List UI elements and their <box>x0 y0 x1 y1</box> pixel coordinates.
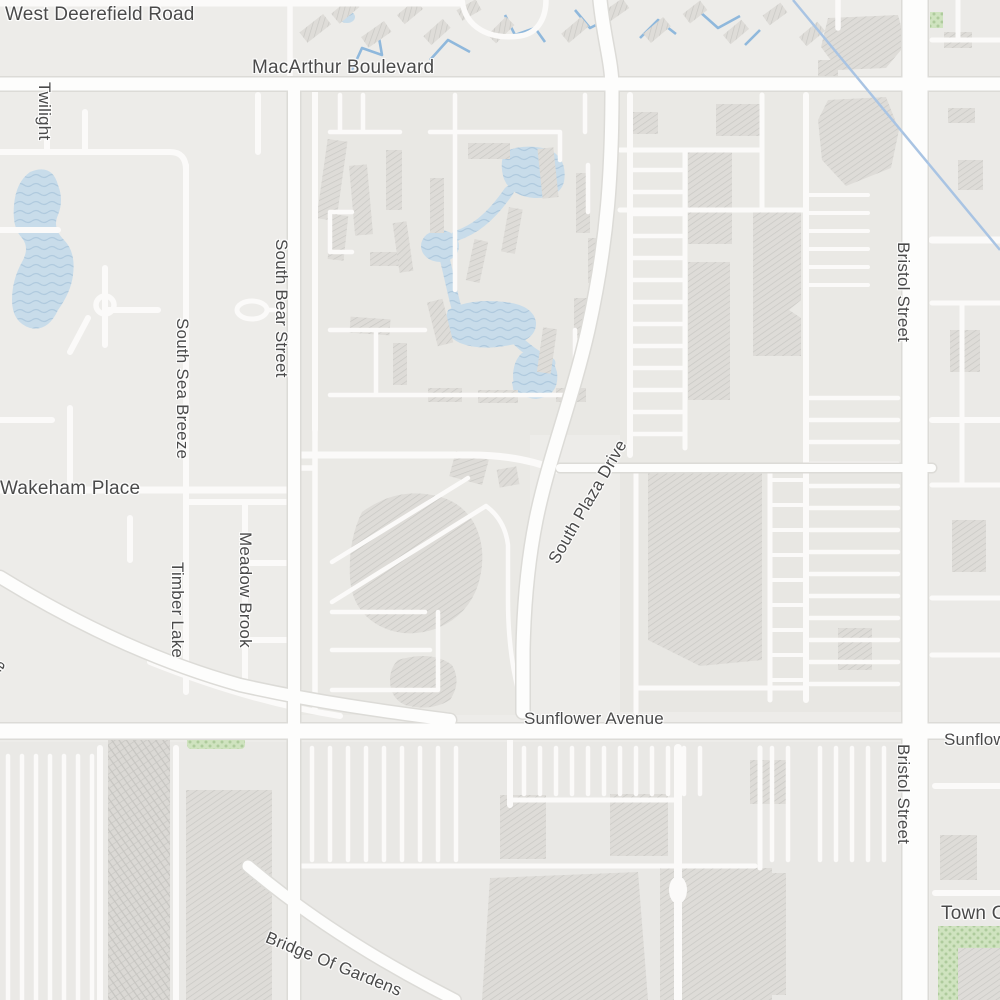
parking-structure <box>108 735 170 1000</box>
map-canvas[interactable]: West Deerefield Road MacArthur Boulevard… <box>0 0 1000 1000</box>
mall-building <box>648 470 762 666</box>
map-graphics <box>0 0 1000 1000</box>
